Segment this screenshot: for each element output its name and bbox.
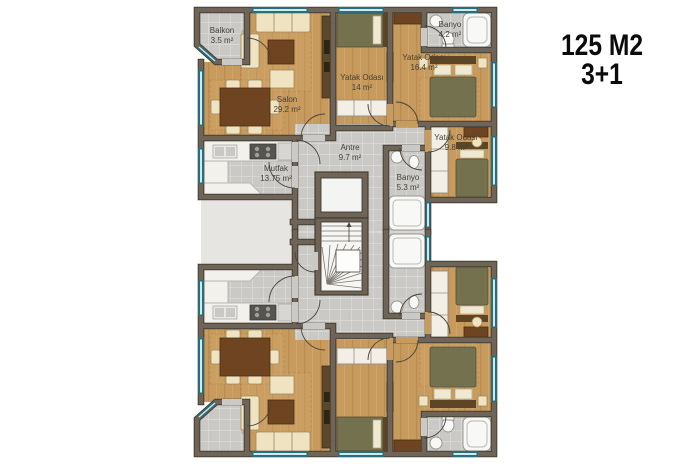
kitchen-sink-icon <box>213 145 237 158</box>
stove-icon <box>250 144 276 159</box>
lightwell-floor <box>201 197 295 232</box>
dining-table <box>211 80 279 134</box>
room-label-banyo-53: Banyo5.3 m² <box>397 173 420 192</box>
wardrobe <box>337 100 387 116</box>
coffee-table <box>268 40 294 64</box>
core-door-gap <box>312 252 318 270</box>
plan-title: 125 M2 3+1 <box>550 31 655 89</box>
sink-icon-2 <box>391 151 403 163</box>
dresser <box>394 12 422 24</box>
plan-size-label: 125 M2 <box>550 31 655 60</box>
room-label-mutfak: Mutfak13.75 m² <box>260 164 292 183</box>
bed-double <box>337 13 389 47</box>
bathtub-icon <box>463 13 491 47</box>
kitchen-cabinet <box>204 161 228 183</box>
room-label-banyo-42: Banyo4.2 m² <box>439 20 462 39</box>
room-label-antre: Antre9.7 m² <box>339 143 362 162</box>
elevator <box>315 172 368 218</box>
sofa <box>256 12 310 32</box>
fridge-icon <box>278 143 294 160</box>
plan-type-label: 3+1 <box>550 60 655 89</box>
staircase <box>315 218 368 295</box>
bathtub-icon-2 <box>389 196 425 230</box>
floorplan-page: Balkon3.5 m² Salon29.2 m² Yatak Odası14 … <box>0 0 700 466</box>
stair-landing <box>336 250 360 272</box>
side-table <box>270 70 294 88</box>
room-label-balkon: Balkon3.5 m² <box>210 26 234 45</box>
room-label-salon: Salon29.2 m² <box>273 95 300 114</box>
